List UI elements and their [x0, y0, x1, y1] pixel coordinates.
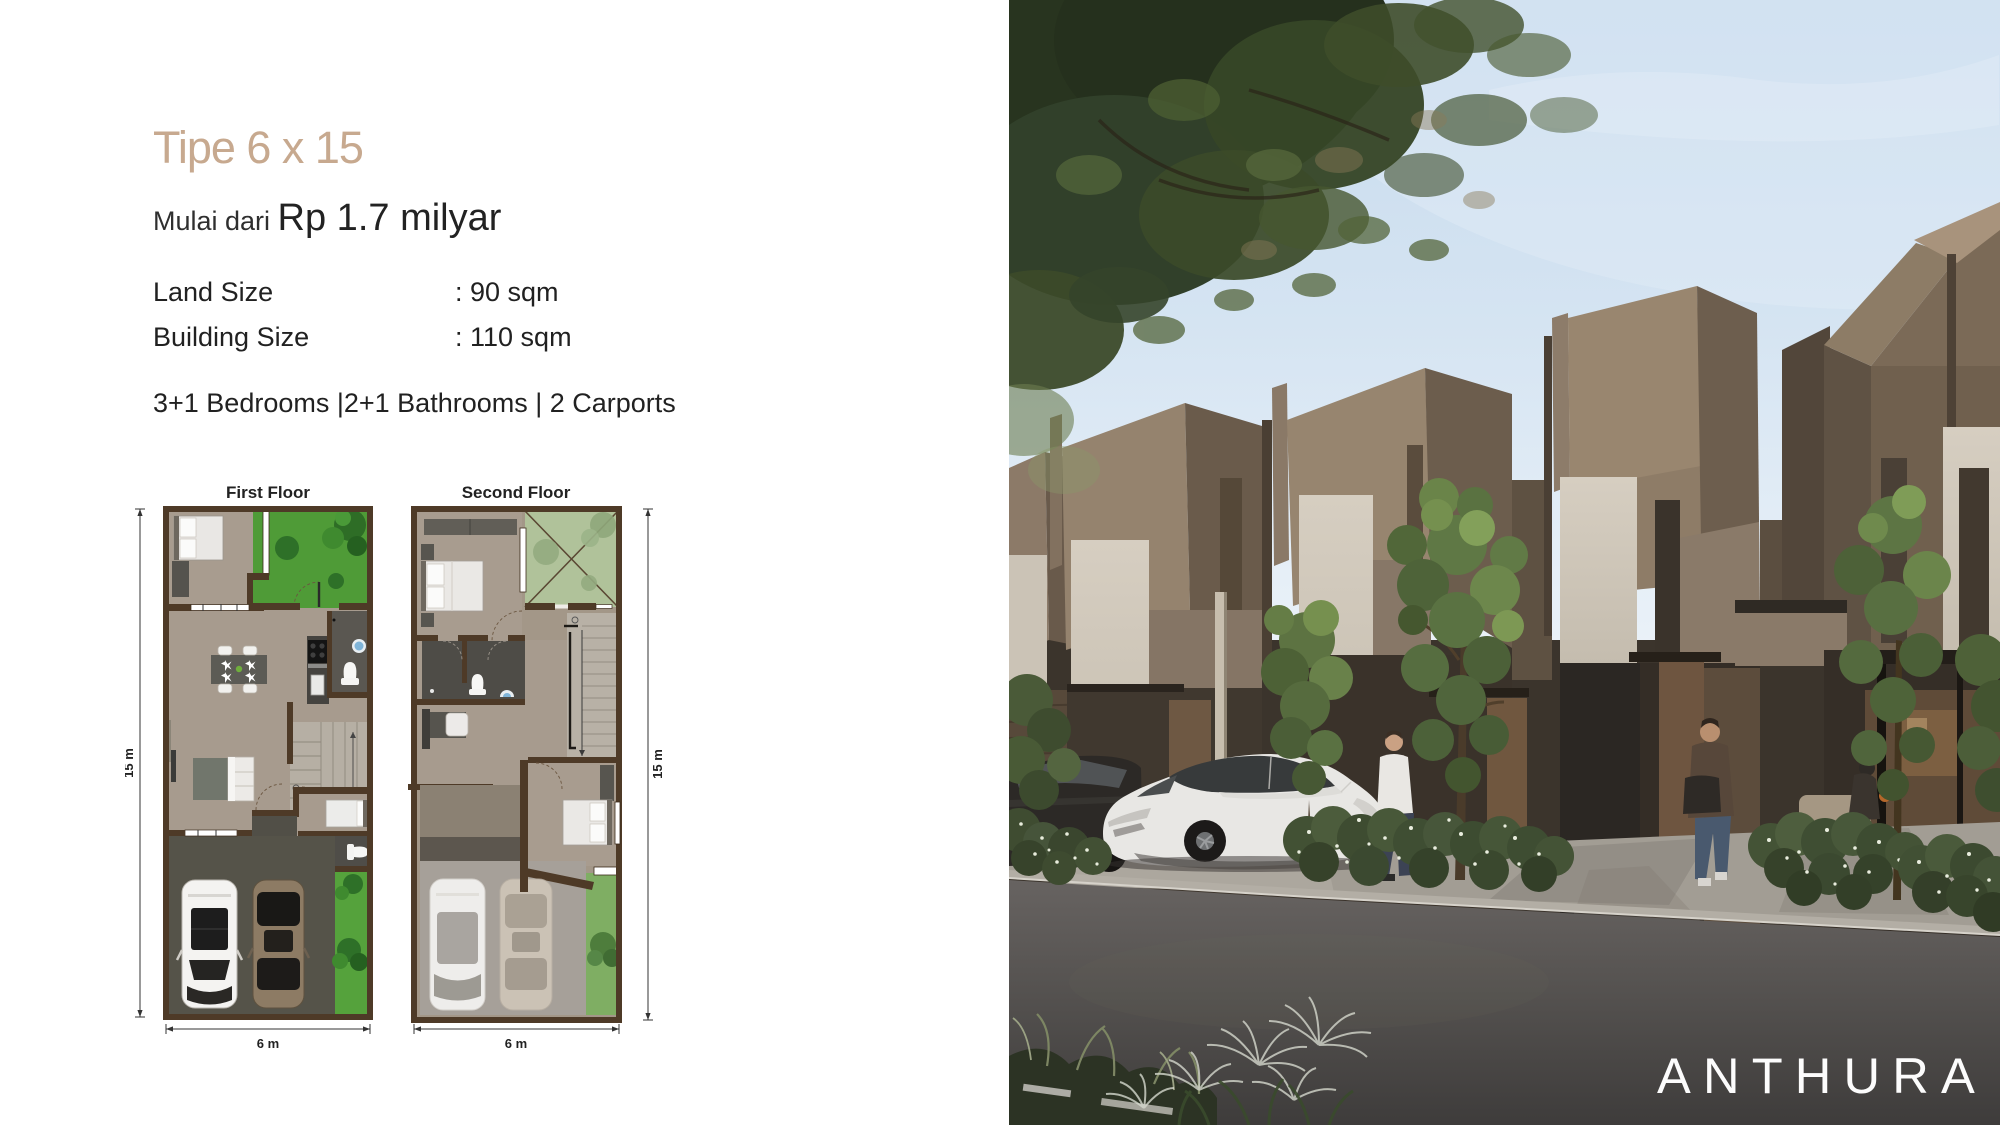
svg-text:ANTHURA: ANTHURA [1657, 1048, 1987, 1104]
svg-text:15 m: 15 m [650, 749, 665, 779]
svg-text:First Floor: First Floor [226, 483, 310, 502]
svg-text:6 m: 6 m [257, 1036, 279, 1051]
svg-text:Second Floor: Second Floor [462, 483, 571, 502]
svg-text:15 m: 15 m [125, 748, 136, 778]
svg-text:6 m: 6 m [505, 1036, 527, 1051]
